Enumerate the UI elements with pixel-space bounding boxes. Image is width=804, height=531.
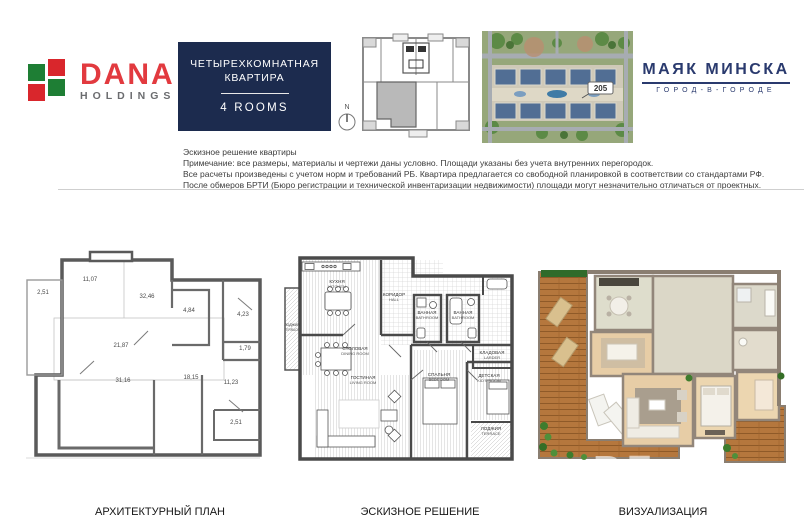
dana-square-red-icon: [28, 84, 45, 101]
arch-door-ticks: [80, 298, 252, 412]
dana-square-green-icon: [28, 64, 45, 81]
area-label: 31,16: [115, 378, 131, 384]
highlighted-unit: [377, 82, 416, 127]
architectural-plan-svg: 2,51 11,07 32,46 4,84 4,23 21,87 1,79 31…: [24, 250, 262, 464]
dana-square-red-icon: [48, 59, 65, 76]
room-label-en: TERRACE: [481, 431, 500, 436]
architectural-plan-panel: 2,51 11,07 32,46 4,84 4,23 21,87 1,79 31…: [24, 250, 262, 464]
room-label-en: HALL: [389, 297, 400, 302]
room-label-en: DINING ROOM: [341, 351, 369, 356]
room-label-en: BATHROOM: [452, 315, 475, 320]
note-line: Все расчеты произведены с учетом норм и …: [183, 169, 768, 180]
area-label: 11,07: [83, 277, 98, 283]
siteplan-svg: 205: [482, 31, 633, 143]
room-label-en: TERRACE: [284, 328, 299, 332]
brochure-page: DANA HOLDINGS ЧЕТЫРЕХКОМНАТНАЯ КВАРТИРА …: [0, 0, 804, 531]
dana-holdings-logo: DANA HOLDINGS: [28, 58, 175, 104]
mayak-title: МАЯК МИНСКА: [642, 61, 789, 84]
floorplate-diagram: N: [333, 30, 477, 143]
caption-sketch-solution: ЭСКИЗНОЕ РЕШЕНИЕ: [320, 506, 520, 518]
area-label: 1,79: [239, 346, 251, 352]
dana-wordmark-block: DANA HOLDINGS: [80, 61, 175, 102]
floorplate-svg: N: [333, 30, 477, 143]
room-label-en: KITCHEN: [328, 284, 346, 289]
arch-inner-walls: [59, 280, 260, 455]
siteplan-plaza: [577, 36, 593, 52]
note-line: Примечание: все размеры, материалы и чер…: [183, 158, 768, 169]
disclaimer-notes: Эскизное решение квартиры Примечание: вс…: [183, 147, 768, 191]
apartment-type-badge: ЧЕТЫРЕХКОМНАТНАЯ КВАРТИРА 4 ROOMS: [178, 42, 331, 131]
area-label: 18,15: [183, 375, 199, 381]
compass-north-label: N: [344, 104, 349, 111]
area-label: 32,46: [139, 294, 155, 300]
visualization-panel: [529, 248, 792, 470]
caption-architectural-plan: АРХИТЕКТУРНЫЙ ПЛАН: [60, 506, 260, 518]
dana-wordmark: DANA: [80, 61, 175, 89]
sketch-plan-panel: ЛОДЖИЯ КУХНЯ КОРИДОР ВАННАЯ ВАННАЯ КЛАДО…: [281, 250, 515, 466]
dana-holdings-label: HOLDINGS: [80, 90, 175, 102]
room-label-en: LIVING ROOM: [350, 380, 377, 385]
area-label: 2,51: [230, 420, 242, 426]
mayak-subtitle: ГОРОД-В-ГОРОДЕ: [641, 87, 791, 94]
apartment-type-line2: КВАРТИРА: [178, 72, 331, 86]
visualization-svg: [529, 248, 792, 470]
arch-area-labels: 2,51 11,07 32,46 4,84 4,23 21,87 1,79 31…: [37, 277, 251, 426]
area-label: 4,23: [237, 312, 249, 318]
area-label: 11,23: [224, 380, 239, 386]
caption-visualization: ВИЗУАЛИЗАЦИЯ: [563, 506, 763, 518]
area-label: 21,87: [113, 343, 129, 349]
compass-icon: N: [339, 104, 355, 130]
siteplan-plaza: [524, 37, 544, 57]
room-label-en: BATHROOM: [416, 315, 439, 320]
badge-divider: [221, 93, 289, 94]
room-label-en: BEDROOM: [429, 377, 450, 382]
sketch-plan-svg: ЛОДЖИЯ КУХНЯ КОРИДОР ВАННАЯ ВАННАЯ КЛАДО…: [281, 250, 515, 466]
mayak-minska-logo: МАЯК МИНСКА ГОРОД-В-ГОРОДЕ: [641, 61, 791, 94]
dana-square-green-icon: [48, 79, 65, 96]
area-label: 4,84: [183, 308, 195, 314]
section-divider: [58, 189, 804, 190]
apartment-type-line1: ЧЕТЫРЕХКОМНАТНАЯ: [178, 58, 331, 72]
dana-squares-icon: [28, 58, 67, 104]
room-label-en: KID'S ROOM: [477, 378, 501, 383]
building-number-label: 205: [594, 84, 608, 93]
rooms-count-label: 4 ROOMS: [178, 102, 331, 114]
note-line: Эскизное решение квартиры: [183, 147, 768, 158]
room-label-ru: ЛОДЖИЯ: [284, 323, 300, 327]
area-label: 2,51: [37, 290, 49, 296]
arch-open-plan-lines: [54, 260, 224, 380]
arch-outer-walls: [27, 252, 260, 455]
siteplan-aerial: 205: [482, 31, 633, 143]
room-label-en: LARDER: [484, 355, 500, 360]
